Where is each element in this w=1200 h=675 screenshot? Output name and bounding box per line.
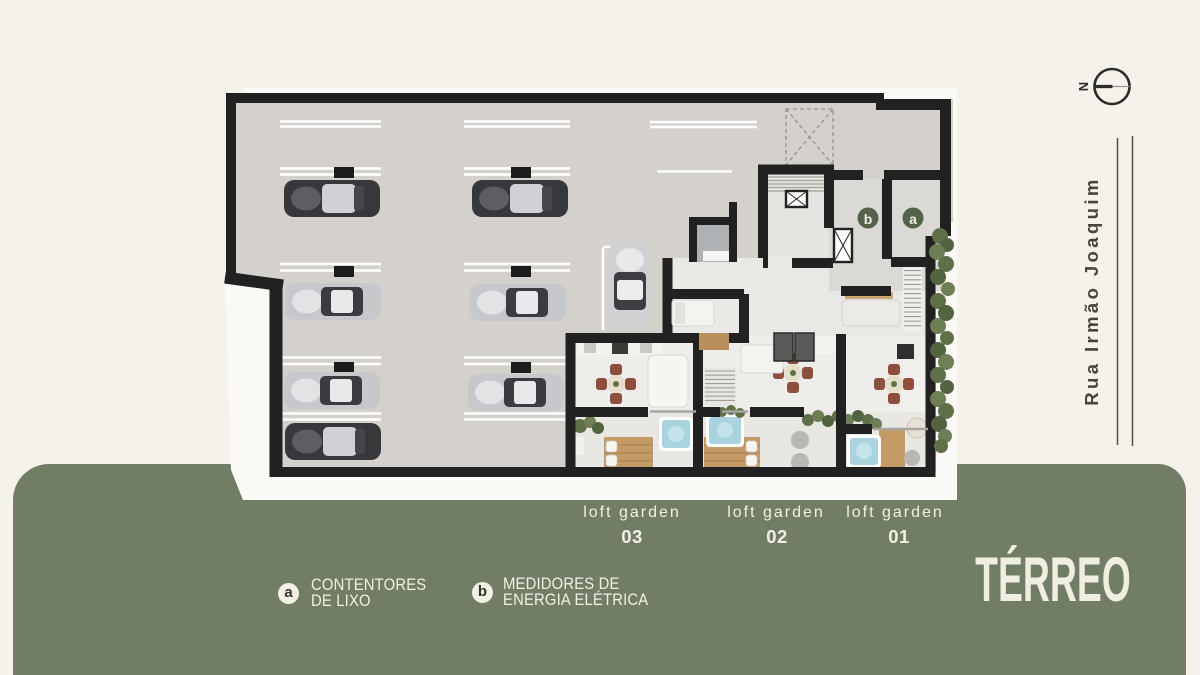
svg-text:b: b	[864, 211, 873, 227]
svg-text:a: a	[909, 211, 917, 227]
svg-text:N: N	[1076, 82, 1091, 91]
